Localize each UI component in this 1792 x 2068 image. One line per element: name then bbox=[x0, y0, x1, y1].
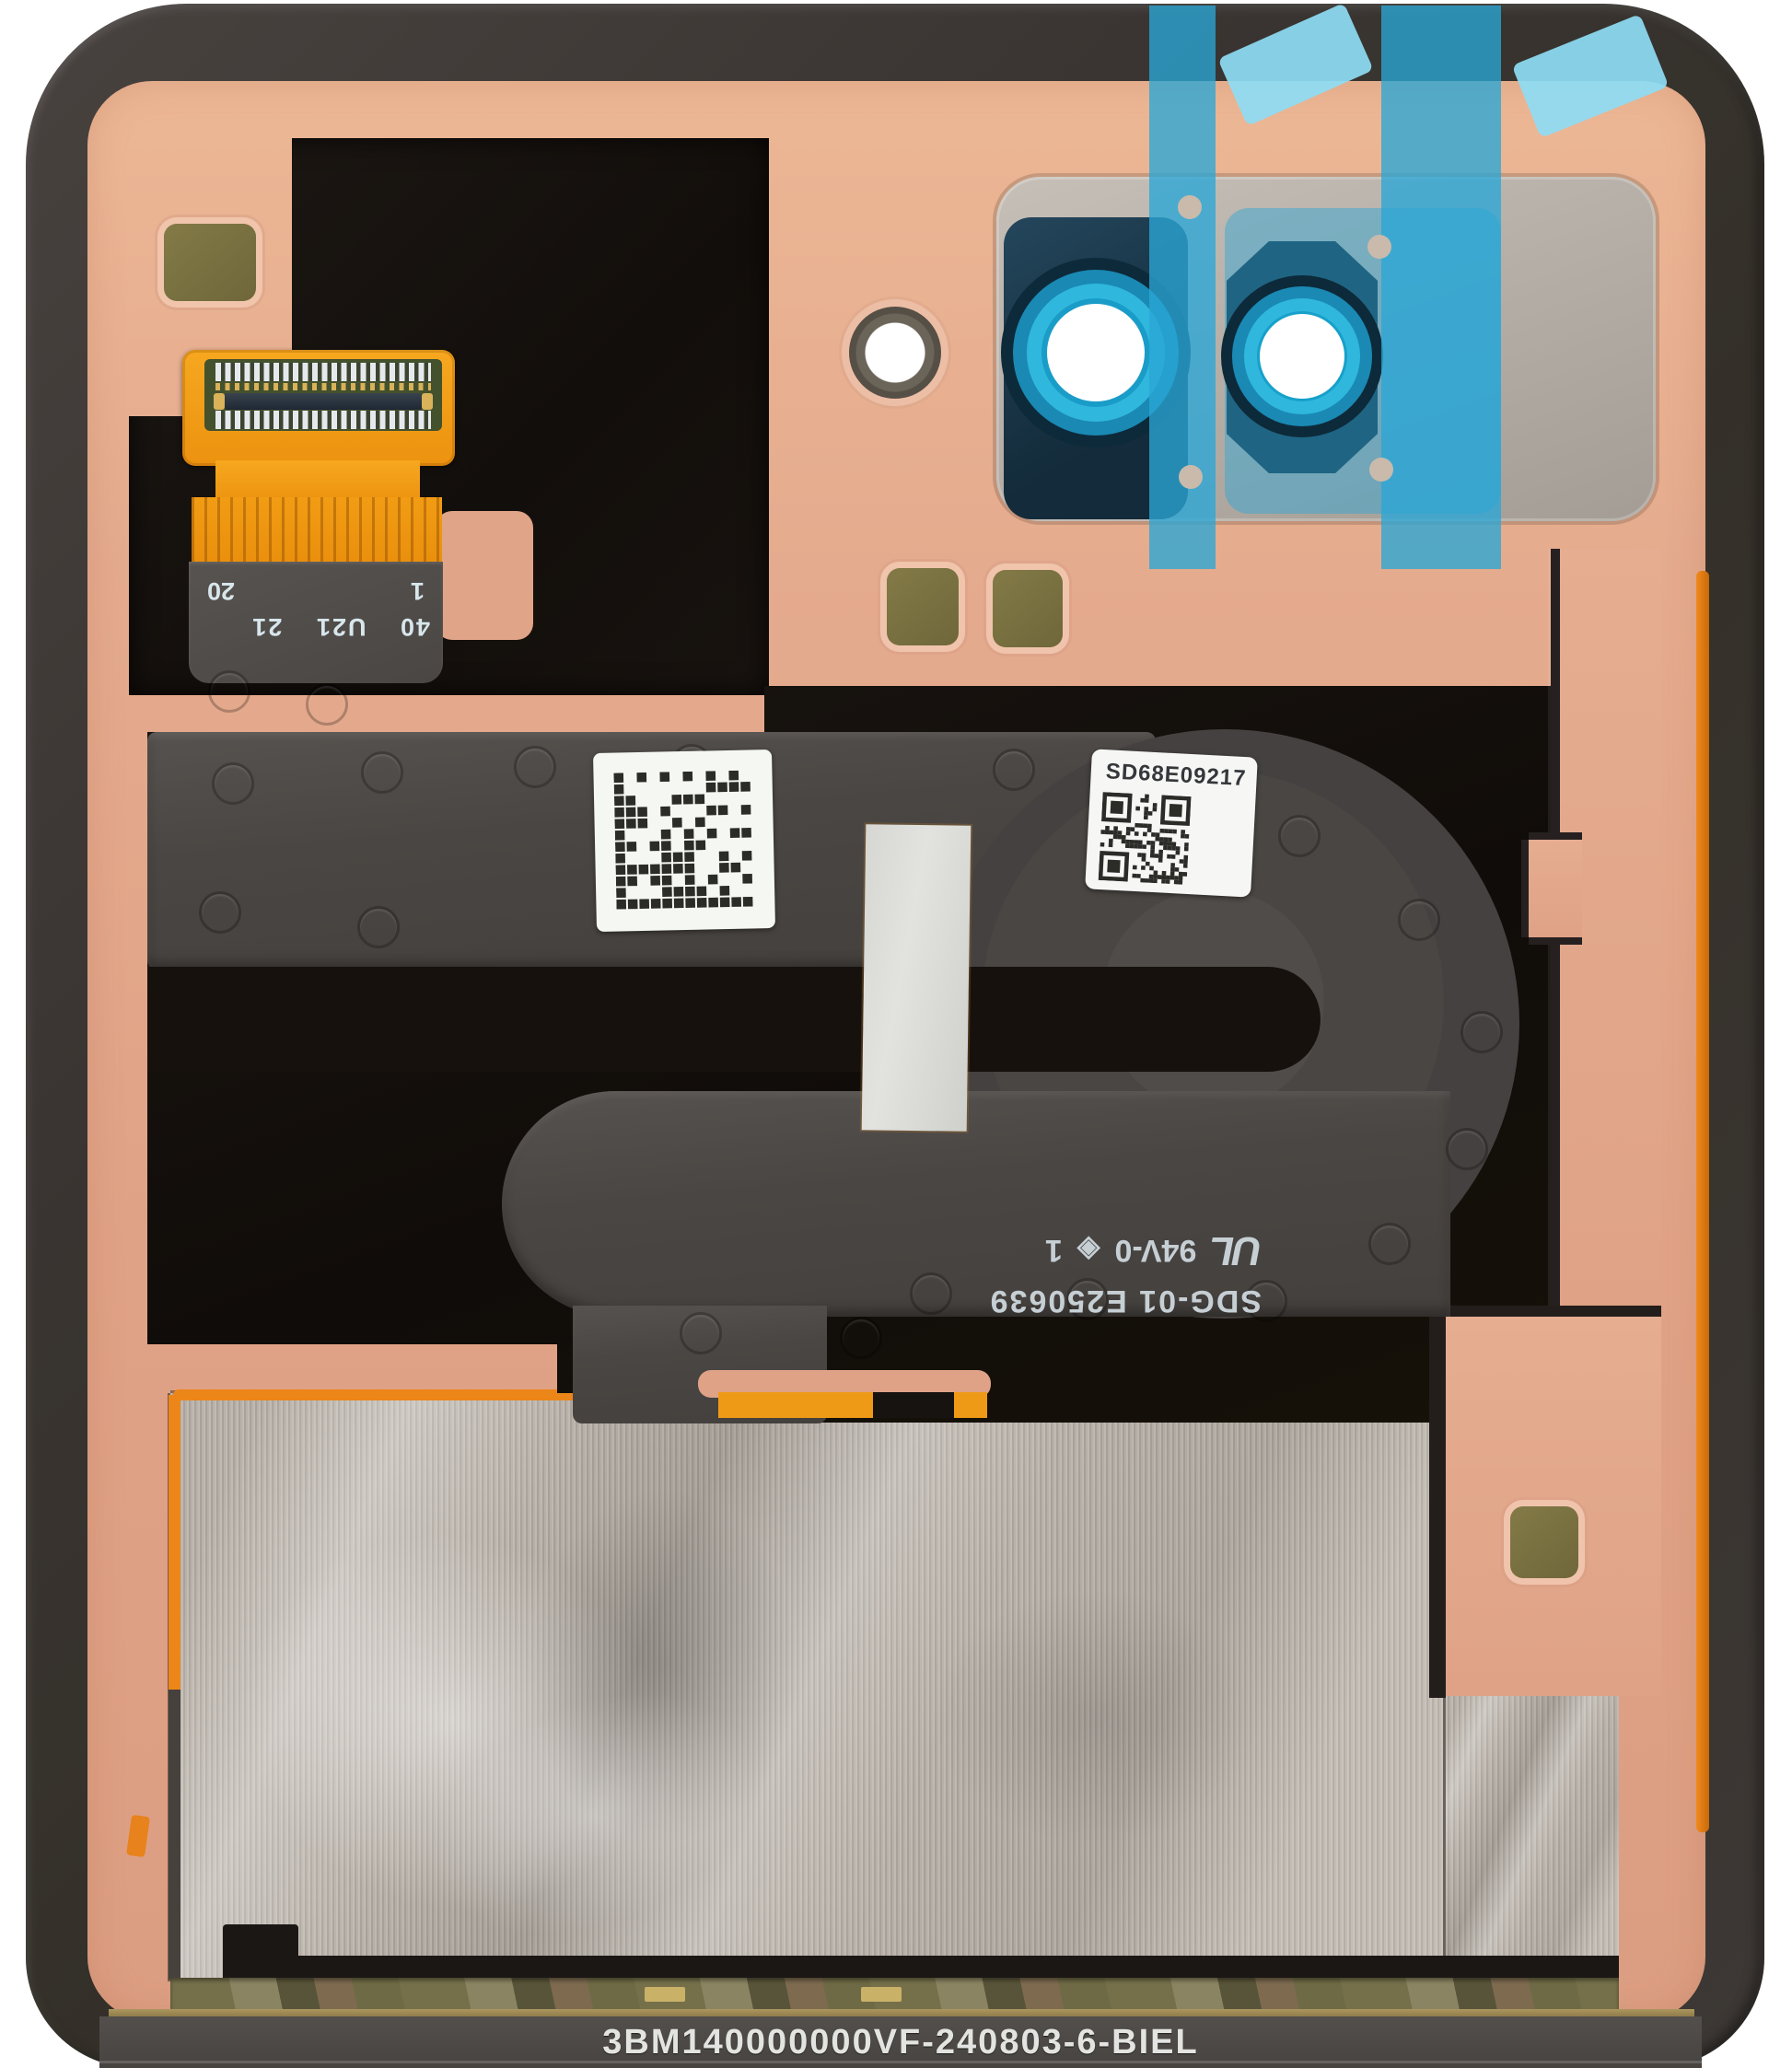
panel-slot bbox=[436, 511, 533, 640]
attach-black-segment bbox=[873, 1392, 954, 1418]
white-sticker-strip bbox=[862, 824, 972, 1132]
connector-gold-dots bbox=[215, 383, 431, 390]
foil-black-patch bbox=[223, 1924, 298, 1981]
flex-stiffener: 40 U21 21 1 20 bbox=[189, 562, 443, 683]
qr-label: SD68E09217 bbox=[1085, 749, 1258, 897]
part-number-text: 3BM140000000VF-240803-6-BIEL bbox=[602, 2023, 1198, 2062]
qr-code bbox=[1099, 792, 1192, 885]
flex-dimple bbox=[1398, 899, 1440, 941]
film-screw-hole bbox=[1178, 195, 1202, 219]
edge-contact-tab bbox=[861, 1987, 902, 2002]
film-screw-hole bbox=[1179, 465, 1203, 489]
bottom-edge-highlight bbox=[99, 2061, 1702, 2063]
film-screw-hole bbox=[1367, 235, 1391, 259]
panel-right-step bbox=[1529, 840, 1582, 937]
camera-lens-left-opening bbox=[1047, 304, 1145, 401]
panel-right-column bbox=[1560, 549, 1661, 1326]
connector-end-cap bbox=[214, 393, 225, 410]
flex-dimple bbox=[357, 906, 400, 948]
board-connector bbox=[221, 393, 425, 410]
connector-end-cap bbox=[422, 393, 433, 410]
contact-pad-bottom-right bbox=[1510, 1506, 1578, 1578]
flex-print-block: SDG-01 E250639 UL 94V-0 ◈ 1 bbox=[884, 1193, 1262, 1319]
flex-dimple bbox=[208, 670, 250, 713]
flex-dimple bbox=[680, 1312, 722, 1354]
connector-pins-bottom bbox=[215, 411, 431, 429]
protective-film-strip bbox=[1381, 6, 1501, 569]
pin-label-line1: 40 U21 21 bbox=[202, 612, 430, 641]
flex-print-suffix: 1 bbox=[1045, 1233, 1063, 1269]
flammability-rating: 94V-0 bbox=[1114, 1233, 1196, 1269]
flex-dimple bbox=[1278, 815, 1321, 857]
panel-orange-edge bbox=[1696, 571, 1709, 1832]
flex-dimple bbox=[306, 683, 348, 726]
foil-shield-lower-right bbox=[1446, 1692, 1619, 1981]
ul-mark: UL bbox=[1211, 1227, 1262, 1273]
contact-pad-mid-2 bbox=[993, 570, 1063, 647]
flex-dimple bbox=[993, 749, 1035, 791]
flex-dimple bbox=[1446, 1128, 1488, 1170]
datamatrix-code bbox=[613, 770, 754, 911]
connector-pin-label: 40 U21 21 1 20 bbox=[202, 576, 430, 641]
connector-pins-top bbox=[215, 363, 431, 381]
flex-dimple bbox=[1460, 1011, 1503, 1053]
flex-dimple bbox=[514, 746, 556, 788]
flex-traces bbox=[192, 497, 442, 571]
flex-dimple bbox=[840, 1317, 882, 1359]
foil-orange-trim-left bbox=[169, 1395, 180, 1691]
contact-pad-top-left bbox=[164, 224, 256, 301]
flex-dimple bbox=[361, 751, 403, 794]
flex-dimple bbox=[212, 762, 254, 805]
panel-dark-rim bbox=[1429, 1306, 1446, 1698]
film-screw-hole bbox=[1369, 458, 1393, 482]
serial-text: SD68E09217 bbox=[1105, 759, 1247, 792]
contact-pad-mid-1 bbox=[887, 568, 959, 645]
camera-lens-right-opening bbox=[1260, 314, 1344, 399]
pin-label-right: 20 bbox=[207, 576, 235, 605]
foil-shadow bbox=[516, 1473, 810, 1860]
flex-print-code: SDG-01 E250639 bbox=[884, 1283, 1262, 1319]
edge-contact-tab bbox=[645, 1987, 685, 2002]
flex-dimple bbox=[1368, 1223, 1411, 1265]
foil-shadow bbox=[902, 1565, 1289, 1869]
flex-gap-notch bbox=[147, 967, 1321, 1072]
flex-dimple bbox=[199, 891, 241, 934]
product-photo-phone-backpanel: 3BM140000000VF-240803-6-BIEL bbox=[0, 0, 1792, 2068]
foil-dark-trim-left bbox=[169, 1690, 180, 1980]
datamatrix-label bbox=[593, 749, 775, 932]
cert-diamond-icon: ◈ bbox=[1077, 1233, 1100, 1268]
pin-label-left: 1 bbox=[411, 576, 425, 605]
mic-hole bbox=[849, 307, 941, 399]
